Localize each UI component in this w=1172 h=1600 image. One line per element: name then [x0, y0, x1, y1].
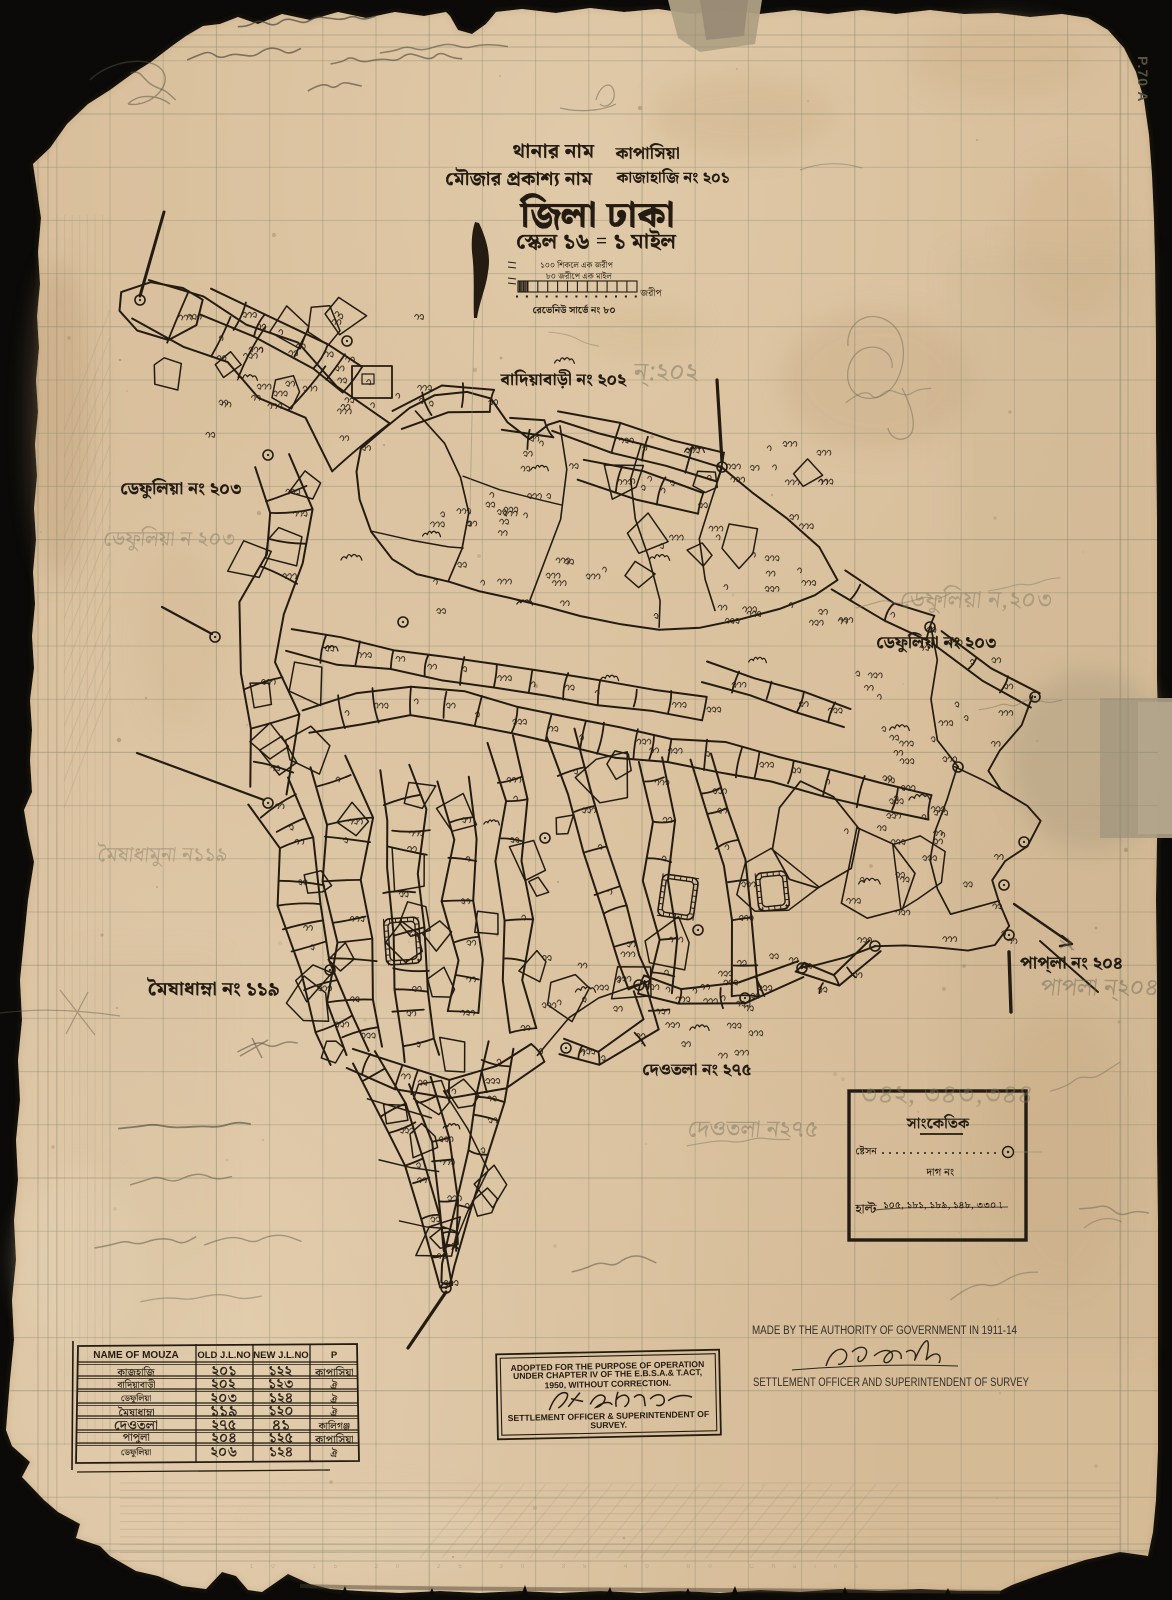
svg-text:10 15 20 25 30 35 40 B0 Chains: 10 15 20 25 30 35 40 B0 Chains	[250, 1564, 876, 1570]
svg-text:NEW J.L.NO: NEW J.L.NO	[253, 1350, 308, 1361]
svg-text:SURVEY.: SURVEY.	[590, 1420, 627, 1431]
svg-text:NAME OF MOUZA: NAME OF MOUZA	[93, 1350, 179, 1361]
svg-text:P.70 A: P.70 A	[1135, 56, 1151, 102]
svg-text:SETTLEMENT OFFICER AND SUPERIN: SETTLEMENT OFFICER AND SUPERINTENDENT OF…	[753, 1377, 1029, 1389]
svg-text:OLD J.L.NO: OLD J.L.NO	[197, 1350, 250, 1361]
svg-text:MADE BY THE AUTHORITY OF GOVER: MADE BY THE AUTHORITY OF GOVERNMENT IN 1…	[752, 1325, 1018, 1337]
svg-text:P: P	[331, 1350, 338, 1361]
